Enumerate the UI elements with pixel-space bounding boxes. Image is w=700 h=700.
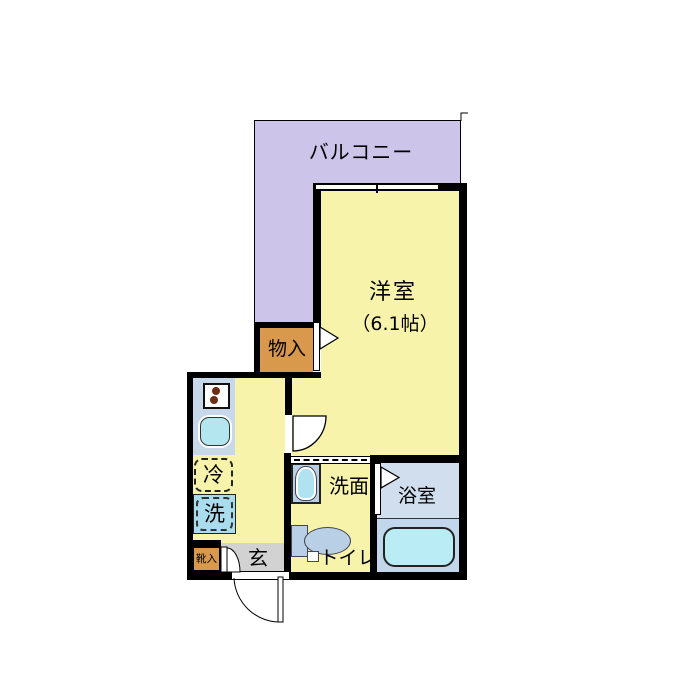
entrance-label: 玄 xyxy=(245,546,271,569)
floor-plan: バルコニー 洋室 （6.1帖） 物入 冷 洗 玄 靴入 洗面 トイレ 浴室 xyxy=(0,0,700,700)
room-swing-door-icon xyxy=(293,416,326,451)
washroom-label: 洗面 xyxy=(324,475,374,497)
washer-label: 洗 xyxy=(193,502,236,526)
bathroom-label: 浴室 xyxy=(393,485,441,507)
entry-door-leaf-icon xyxy=(278,577,283,622)
refrigerator-label: 冷 xyxy=(194,463,233,487)
shoe-cabinet-label: 靴入 xyxy=(192,548,221,570)
door-symbols-layer xyxy=(0,0,700,700)
entry-swing-door-icon xyxy=(234,578,281,622)
closet-door-flag-icon xyxy=(320,327,338,349)
shoe-cabinet-door-icon xyxy=(227,548,240,572)
balcony-label: バルコニー xyxy=(281,140,441,164)
western-room-label: 洋室 xyxy=(353,281,433,305)
western-room-size-label: （6.1帖） xyxy=(345,313,445,336)
storage-closet-label: 物入 xyxy=(258,338,316,360)
toilet-label: トイレ xyxy=(319,548,377,569)
shoe-cabinet-door-leaf-icon xyxy=(221,547,227,572)
balcony-corner-notch xyxy=(461,113,468,121)
